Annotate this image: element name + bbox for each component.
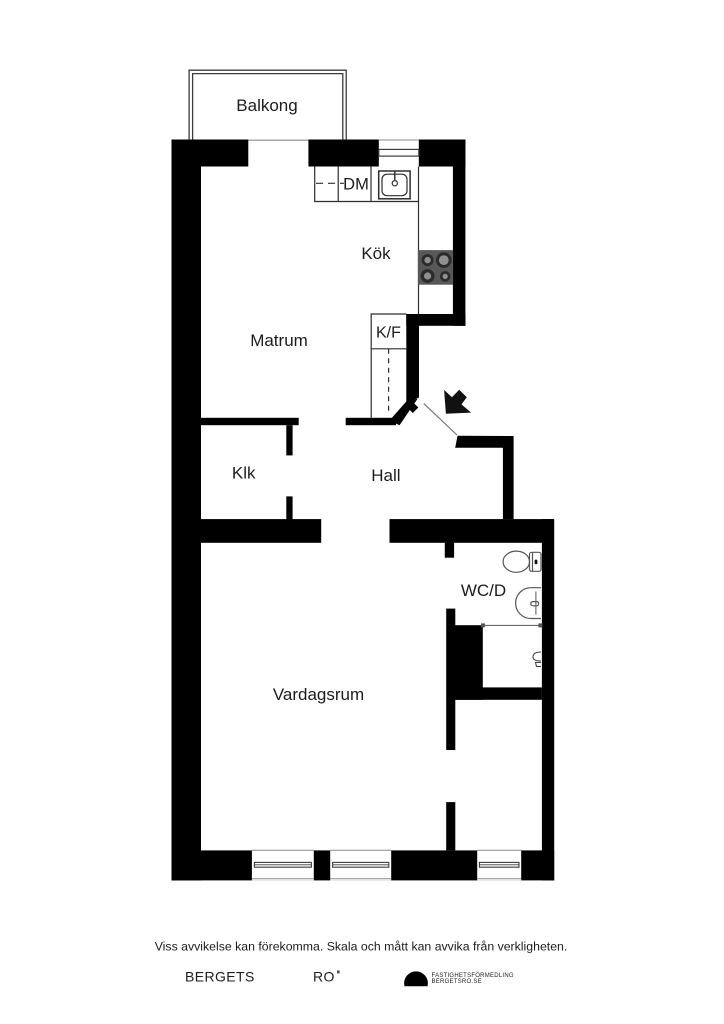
- svg-text:BERGETS: BERGETS: [185, 969, 255, 985]
- svg-text:WC/D: WC/D: [461, 581, 506, 600]
- svg-text:Matrum: Matrum: [250, 331, 308, 350]
- svg-text:K/F: K/F: [376, 325, 401, 342]
- svg-text:Hall: Hall: [371, 466, 400, 485]
- svg-text:BERGETSRO.SE: BERGETSRO.SE: [432, 979, 482, 985]
- svg-text:Balkong: Balkong: [236, 96, 297, 115]
- svg-text:Kök: Kök: [361, 244, 391, 263]
- svg-text:RO: RO: [313, 969, 335, 985]
- svg-text:FASTIGHETSFÖRMEDLING: FASTIGHETSFÖRMEDLING: [432, 972, 514, 979]
- svg-text:Vardagsrum: Vardagsrum: [273, 685, 364, 704]
- svg-text:Viss avvikelse kan förekomma.: Viss avvikelse kan förekomma. Skala och …: [155, 939, 568, 953]
- svg-text:DM: DM: [343, 176, 369, 194]
- svg-text:Klk: Klk: [232, 463, 256, 482]
